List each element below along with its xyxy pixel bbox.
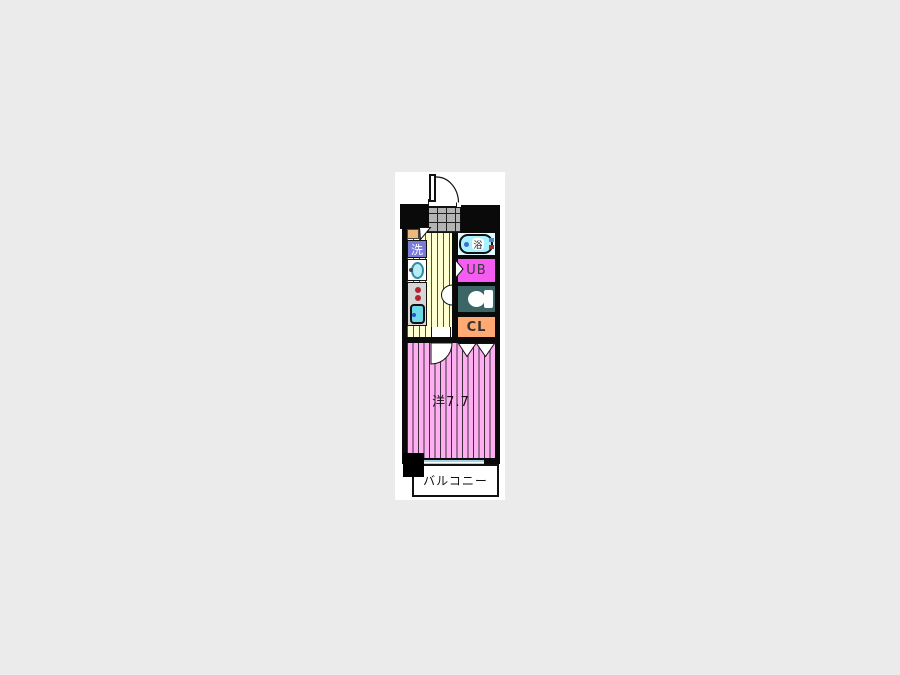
burner-icon [415,287,421,293]
closet-doors-icon [458,343,495,358]
closet-label: CL [458,317,495,337]
burner-icon [415,295,421,301]
genkan-tile-floor [427,207,461,233]
bathtub-icon: 浴 [459,234,493,254]
main-room-label: 洋7.7 [432,391,470,410]
faucet-icon [409,268,413,272]
entry-step [407,229,419,239]
room-door-swing-icon [431,343,454,366]
kitchen-sink-icon [410,304,425,324]
toilet-door-swing-icon [440,284,453,306]
toilet-room [458,286,495,312]
balcony-label: バルコニー [423,472,488,489]
pillar [403,453,424,477]
washroom-door-icon [419,227,431,240]
floor-plan: 浴 UB CL 洗 洋7.7 [395,172,505,500]
washer-label: 洗 [407,240,427,258]
kitchen-counter [407,282,427,326]
wall-entrance-left [400,204,429,229]
sink-bowl-icon [411,262,424,279]
toilet-bowl-icon [468,291,485,307]
drain-icon [464,242,469,247]
vanity-sink [407,259,427,281]
entrance-door-swing-icon [435,174,460,203]
room-doorway [431,327,451,337]
entrance-door-leaf [429,174,436,202]
bath-label: 浴 [472,238,484,250]
toilet-tank-icon [484,290,493,308]
cold-faucet-icon [489,238,494,242]
unit-bath-door-icon [455,259,464,279]
bath-room: 浴 [458,233,495,255]
drain-icon [412,313,416,317]
wall-right [495,205,500,464]
hot-faucet-icon [489,245,494,249]
balcony: バルコニー [412,464,499,497]
